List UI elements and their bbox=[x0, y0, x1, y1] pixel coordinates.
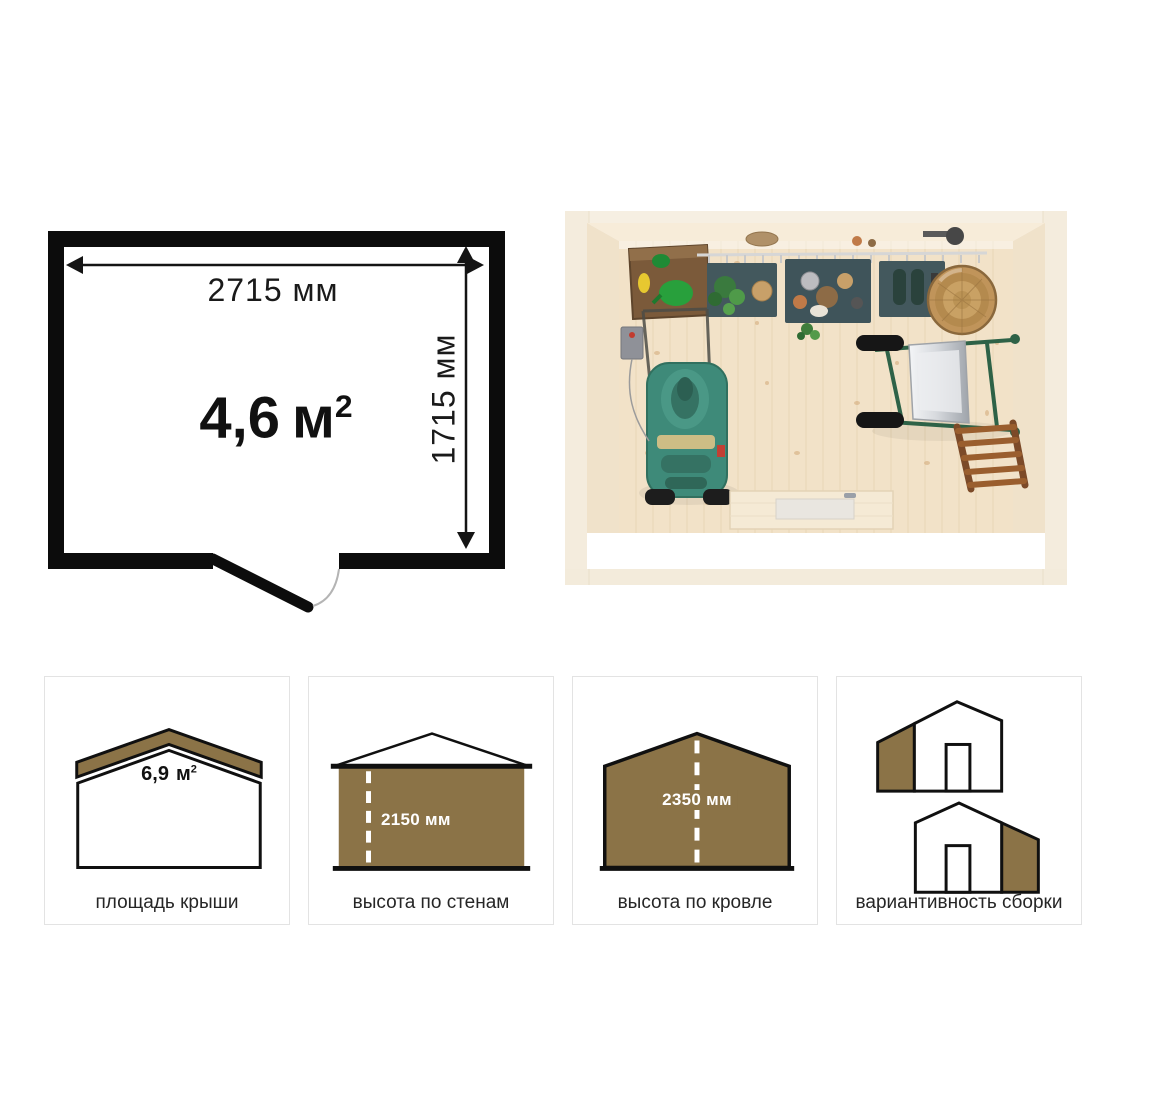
mower-wheel bbox=[703, 489, 733, 505]
wall-top bbox=[587, 223, 1045, 241]
roof-height-value: 2350 мм bbox=[657, 790, 737, 810]
boot bbox=[911, 269, 924, 305]
house-door bbox=[946, 744, 970, 791]
card-label: высота по стенам bbox=[309, 892, 553, 914]
door-swing-arc bbox=[313, 569, 339, 606]
roof-area-icon bbox=[45, 677, 289, 924]
card-wall-height: 2150 мм высота по стенам bbox=[308, 676, 554, 925]
card-roof-area: 6,9м2 площадь крыши bbox=[44, 676, 290, 925]
wheelbarrow-wheel bbox=[856, 335, 904, 351]
shed-infographic: 2715 мм 1715 мм 4,6м2 bbox=[0, 0, 1176, 1106]
door-threshold bbox=[730, 491, 893, 529]
plan-height-dimension: 1715 мм bbox=[426, 333, 463, 464]
area-value: 4,6 bbox=[199, 386, 280, 451]
card-roof-height: 2350 мм высота по кровле bbox=[572, 676, 818, 925]
shed-top-view-photo bbox=[557, 203, 1075, 595]
sup: 2 bbox=[191, 763, 197, 775]
wheelbarrow-wheel bbox=[856, 412, 904, 428]
area-unit: м bbox=[292, 386, 335, 451]
unit: м bbox=[176, 763, 191, 785]
floor-plan: 2715 мм 1715 мм 4,6м2 bbox=[48, 228, 508, 613]
wall-height-value: 2150 мм bbox=[381, 810, 451, 830]
plan-width-dimension: 2715 мм bbox=[62, 272, 484, 309]
wall-left bbox=[587, 223, 619, 555]
spec-cards: 6,9м2 площадь крыши 2150 мм высота по ст… bbox=[44, 676, 1082, 925]
mower-wheel bbox=[645, 489, 675, 505]
card-label: площадь крыши bbox=[45, 892, 289, 914]
barrel bbox=[928, 266, 996, 334]
card-assembly-variants: вариантивность сборки bbox=[836, 676, 1082, 925]
card-label: высота по кровле bbox=[573, 892, 817, 914]
house-door bbox=[946, 846, 970, 893]
boot bbox=[893, 269, 906, 305]
watering-can bbox=[659, 280, 693, 306]
card-label: вариантивность сборки bbox=[837, 892, 1081, 914]
wall-right bbox=[1013, 223, 1045, 555]
front-opening-glow bbox=[587, 533, 1045, 569]
assembly-variants-icon bbox=[837, 677, 1081, 924]
wall-height-icon bbox=[309, 677, 553, 924]
shed-photo-graphic bbox=[557, 203, 1075, 595]
value: 6,9 bbox=[141, 763, 169, 785]
area-sup: 2 bbox=[335, 388, 353, 424]
door-leaf bbox=[213, 559, 308, 607]
roof-area-value: 6,9м2 bbox=[141, 763, 197, 786]
plan-area-label: 4,6м2 bbox=[199, 385, 352, 452]
